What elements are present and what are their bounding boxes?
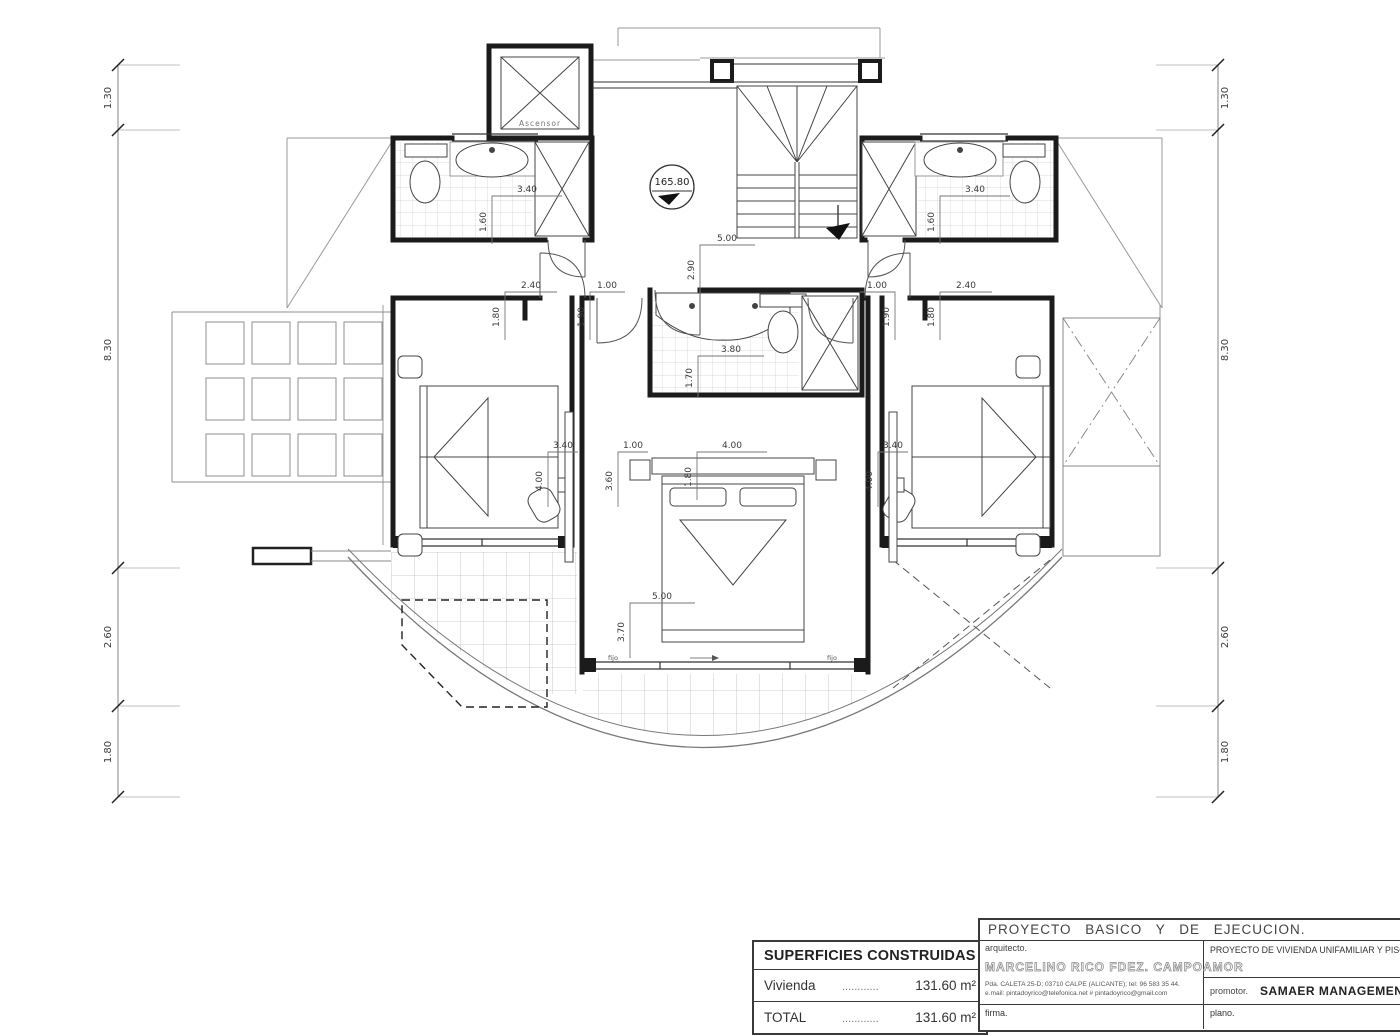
staircase: [737, 86, 857, 240]
toilet-cistern: [405, 144, 447, 157]
sliding-wardrobe: [889, 412, 897, 562]
toilet-bowl: [1010, 161, 1040, 203]
surfaces-table-title: SUPERFICIES CONSTRUIDAS: [754, 942, 986, 970]
svg-text:3.80: 3.80: [721, 345, 741, 355]
fijo-label: fijo: [827, 654, 837, 662]
svg-text:4.00: 4.00: [722, 441, 742, 451]
project-title: PROYECTO BASICO Y DE EJECUCION.: [980, 920, 1400, 941]
svg-text:1.90: 1.90: [882, 307, 892, 327]
pergola-grid: [172, 312, 393, 482]
slide-direction-arrow: [712, 655, 719, 661]
svg-text:1.60: 1.60: [927, 212, 937, 232]
plan-label: plano.: [1204, 1005, 1241, 1029]
svg-text:5.00: 5.00: [717, 234, 737, 244]
svg-text:1.80: 1.80: [1220, 741, 1231, 763]
svg-text:1.00: 1.00: [597, 281, 617, 291]
promoter-cell: promotor. SAMAER MANAGEMENT S.L: [1204, 977, 1400, 1004]
nightstand: [1016, 356, 1040, 378]
level-marker: 165.80: [650, 165, 694, 209]
svg-text:3.40: 3.40: [883, 441, 903, 451]
floor-plan-canvas: Ascensor: [0, 0, 1400, 1028]
drawing-sheet: { "drawing": { "level_marker": "165.80",…: [0, 0, 1400, 1028]
stair-direction-arrow: [826, 223, 850, 240]
nightstand: [398, 534, 422, 556]
svg-text:8.30: 8.30: [103, 339, 114, 361]
elevator-shaft: Ascensor: [489, 46, 591, 138]
table-row: TOTAL ............ 131.60 m²: [754, 1002, 986, 1033]
svg-text:2.40: 2.40: [521, 281, 541, 291]
svg-text:1.90: 1.90: [577, 307, 587, 327]
project-description: PROYECTO DE VIVIENDA UNIFAMILIAR Y PISCI…: [1204, 941, 1400, 977]
architect-label: arquitecto.: [985, 943, 1198, 953]
svg-text:1.00: 1.00: [867, 281, 887, 291]
title-block: PROYECTO BASICO Y DE EJECUCION. arquitec…: [978, 918, 1400, 1032]
toilet-bowl: [768, 311, 798, 353]
row-value: 131.60 m²: [915, 978, 976, 993]
toilet-cistern: [1003, 144, 1045, 157]
nightstand: [398, 356, 422, 378]
architect-cell: arquitecto. MARCELINO RICO FDEZ. CAMPOAM…: [980, 941, 1204, 1004]
sliding-wardrobe: [565, 412, 573, 562]
dimension-chain-right: 1.30 8.30 2.60 1.80: [1156, 59, 1231, 803]
svg-text:2.60: 2.60: [103, 626, 114, 648]
svg-text:3.70: 3.70: [617, 622, 627, 642]
toilet-cistern: [760, 294, 806, 307]
svg-text:5.00: 5.00: [652, 592, 672, 602]
svg-text:1.80: 1.80: [684, 467, 694, 487]
side-table: [816, 460, 836, 480]
elevator-label: Ascensor: [519, 119, 561, 128]
svg-text:4.00: 4.00: [865, 471, 875, 491]
svg-text:1.80: 1.80: [927, 307, 937, 327]
architect-name: MARCELINO RICO FDEZ. CAMPOAMOR: [985, 960, 1198, 974]
promoter-label: promotor.: [1210, 986, 1248, 996]
svg-text:1.60: 1.60: [479, 212, 489, 232]
surfaces-table: SUPERFICIES CONSTRUIDAS Vivienda .......…: [752, 940, 988, 1035]
svg-text:1.30: 1.30: [1220, 87, 1231, 109]
svg-text:2.60: 2.60: [1220, 626, 1231, 648]
row-label: Vivienda: [764, 978, 842, 993]
table-row: Vivienda ............ 131.60 m²: [754, 970, 986, 1002]
svg-text:1.00: 1.00: [623, 441, 643, 451]
window-labels: fijo fijo: [608, 654, 837, 662]
svg-text:8.30: 8.30: [1220, 339, 1231, 361]
row-value: 131.60 m²: [915, 1010, 976, 1025]
planter-wall: [253, 548, 391, 564]
svg-text:1.30: 1.30: [103, 87, 114, 109]
signature-label: firma.: [980, 1005, 1204, 1029]
pillow: [670, 488, 726, 506]
row-dots: ............: [842, 981, 915, 993]
headboard-shelf: [652, 458, 814, 474]
dimension-chain-left: 1.30 8.30 2.60 1.80: [103, 59, 180, 803]
north-window-band: [592, 58, 885, 88]
row-label: TOTAL: [764, 1010, 842, 1025]
architect-email: e.mail: pintadoyrico@telefonica.net # pi…: [985, 990, 1198, 999]
toilet-bowl: [410, 161, 440, 203]
svg-text:1.80: 1.80: [103, 741, 114, 763]
svg-text:165.80: 165.80: [655, 177, 690, 188]
architect-address: Pda. CALETA 25-D; 03710 CALPE (ALICANTE)…: [985, 981, 1198, 990]
svg-text:1.80: 1.80: [492, 307, 502, 327]
row-dots: ............: [842, 1013, 915, 1025]
svg-text:3.40: 3.40: [965, 185, 985, 195]
svg-text:2.40: 2.40: [956, 281, 976, 291]
svg-text:3.40: 3.40: [553, 441, 573, 451]
svg-text:3.60: 3.60: [605, 471, 615, 491]
svg-text:3.40: 3.40: [517, 185, 537, 195]
fijo-label: fijo: [608, 654, 618, 662]
upper-right-terrace: [1063, 318, 1160, 556]
svg-text:2.90: 2.90: [687, 260, 697, 280]
svg-text:1.70: 1.70: [685, 368, 695, 388]
promoter-name: SAMAER MANAGEMENT S.L: [1260, 984, 1400, 998]
pillow: [740, 488, 796, 506]
side-table: [630, 460, 650, 480]
svg-text:4.00: 4.00: [535, 471, 545, 491]
right-terrace-dashed-x: [893, 560, 1050, 688]
nightstand: [1016, 534, 1040, 556]
